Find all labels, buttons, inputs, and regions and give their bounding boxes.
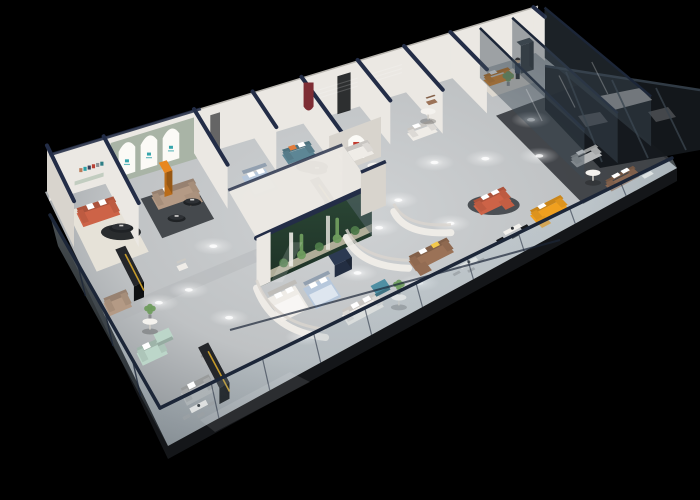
- gallery-frame: [88, 166, 91, 170]
- arch-logo-mark: [169, 146, 173, 149]
- terrarium-cactus: [335, 218, 339, 238]
- spotlight-core: [481, 157, 489, 161]
- spotlight-core: [394, 198, 402, 202]
- table-arch-2-decor: [190, 199, 194, 201]
- arch-logo-text: [146, 157, 152, 158]
- arch-logo-mark: [125, 159, 129, 162]
- table-mint-plant-pot: [148, 315, 151, 319]
- table-round-top-top: [421, 108, 436, 114]
- arch-logo-mark: [147, 153, 151, 156]
- spotlight-core: [354, 271, 362, 275]
- table-mint-plant-foliage: [147, 304, 153, 310]
- gallery-frame: [100, 162, 103, 166]
- spotlight-core: [430, 161, 438, 165]
- spotlight-core: [185, 288, 193, 292]
- burgundy-arch-decor: [304, 83, 314, 111]
- table-east-top: [585, 170, 600, 176]
- table-west-decor: [119, 225, 123, 227]
- arch-logo-text: [124, 164, 130, 165]
- showroom-scene-canvas: [0, 0, 700, 500]
- spotlight-core: [225, 316, 233, 320]
- showroom-render: [0, 0, 700, 500]
- gallery-frame: [79, 168, 82, 172]
- gallery-frame: [92, 164, 95, 168]
- table-mint-top: [142, 318, 157, 324]
- gallery-frame: [83, 167, 86, 171]
- arch-logo-text: [168, 150, 174, 151]
- terrarium-bush: [315, 242, 324, 251]
- back-wall-doorway: [337, 72, 350, 114]
- spotlight-core: [209, 244, 217, 248]
- table-arch-1-decor: [175, 215, 179, 217]
- terrarium-west-pedestal: [257, 232, 271, 288]
- terrarium-bush: [351, 226, 360, 235]
- desk-right-centerpiece: [511, 227, 514, 230]
- spotlight-core: [535, 154, 543, 158]
- gallery-frame: [96, 163, 99, 167]
- terrarium-pillar: [326, 216, 330, 250]
- table-west-top: [112, 223, 131, 230]
- spotlight-core: [375, 226, 383, 230]
- spotlight-core: [155, 301, 163, 305]
